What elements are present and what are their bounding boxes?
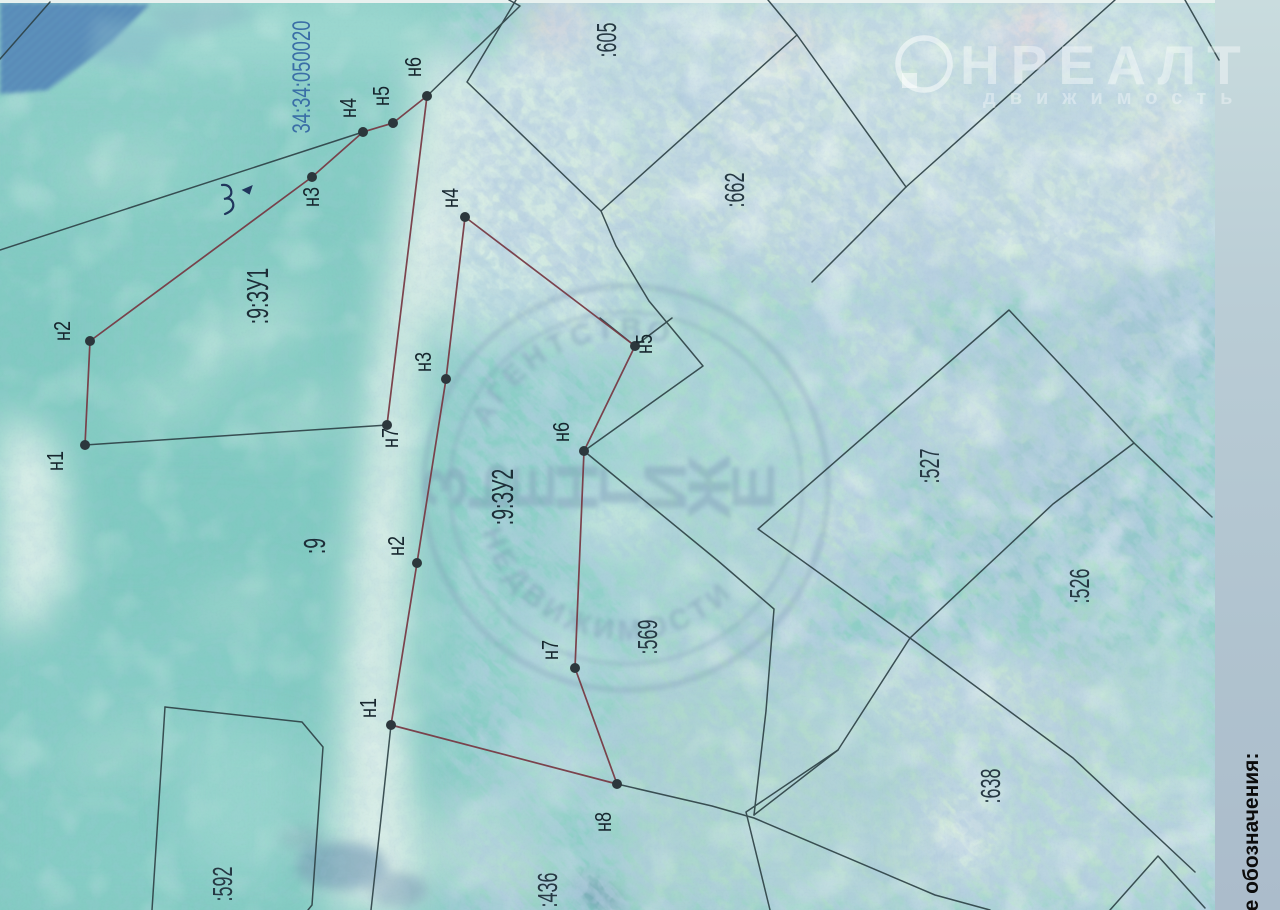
svg-text::9:ЗУ2: :9:ЗУ2 <box>487 469 520 525</box>
svg-text:н5: н5 <box>369 86 395 106</box>
svg-text:н1: н1 <box>43 451 69 471</box>
svg-text:е обозначения:: е обозначения: <box>1240 753 1263 910</box>
svg-text:н6: н6 <box>401 57 427 77</box>
svg-text:Е: Е <box>720 463 787 510</box>
svg-text:34:34:050020: 34:34:050020 <box>287 21 315 134</box>
svg-text:н2: н2 <box>384 536 410 556</box>
svg-text:н3: н3 <box>299 187 325 207</box>
svg-text::9:ЗУ1: :9:ЗУ1 <box>242 268 275 324</box>
svg-text:н6: н6 <box>549 422 575 442</box>
svg-text::662: :662 <box>719 173 750 208</box>
svg-text::436: :436 <box>532 873 563 908</box>
svg-text::638: :638 <box>975 769 1006 804</box>
svg-text:н5: н5 <box>632 334 658 354</box>
svg-text::9: :9 <box>299 538 332 554</box>
svg-text:н7: н7 <box>538 640 564 660</box>
svg-text:н1: н1 <box>356 698 382 718</box>
svg-text:н7: н7 <box>378 428 404 448</box>
svg-text:н3: н3 <box>411 352 437 372</box>
svg-text::569: :569 <box>632 620 663 655</box>
svg-text::526: :526 <box>1064 569 1095 604</box>
svg-text:н8: н8 <box>591 812 617 832</box>
svg-text:н4: н4 <box>438 188 464 208</box>
svg-text::605: :605 <box>591 23 622 58</box>
svg-text:движимость: движимость <box>983 87 1246 109</box>
svg-text:н4: н4 <box>336 98 362 118</box>
svg-text:н2: н2 <box>50 321 76 341</box>
svg-text::527: :527 <box>914 449 945 484</box>
svg-text::592: :592 <box>207 867 238 902</box>
